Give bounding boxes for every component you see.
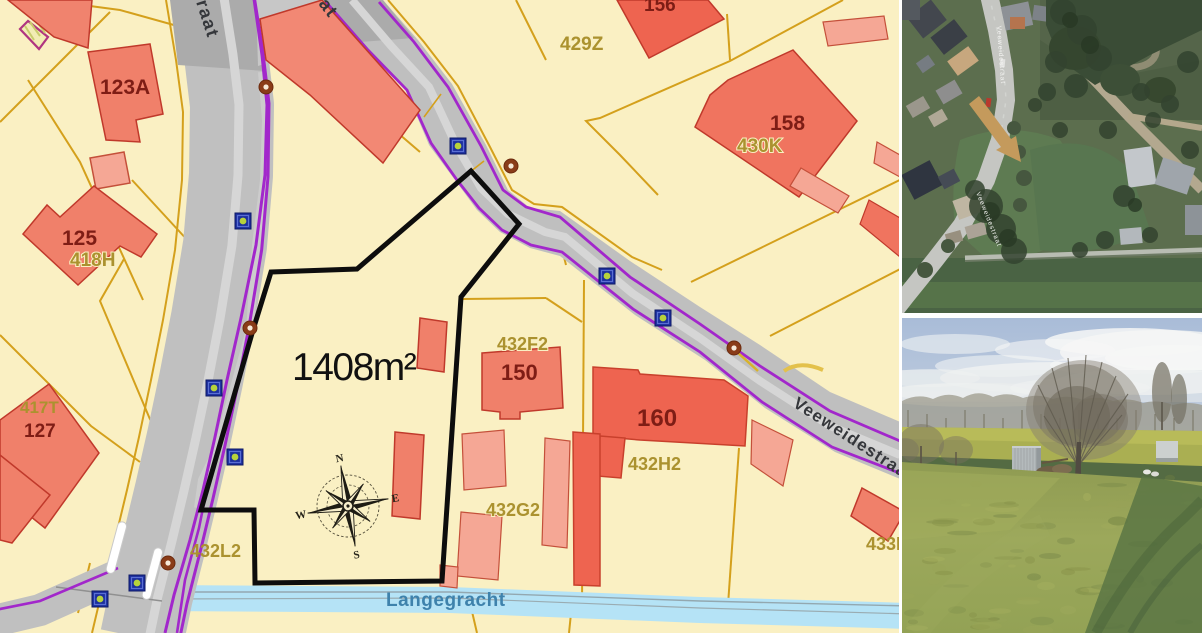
svg-text:1408m²: 1408m² [292,346,417,389]
svg-text:429Z: 429Z [560,34,604,55]
svg-text:158: 158 [770,112,805,135]
svg-text:123A: 123A [100,76,150,99]
svg-text:418H: 418H [70,250,115,271]
svg-text:432H2: 432H2 [628,454,681,474]
svg-text:432G2: 432G2 [486,500,540,520]
svg-text:417T: 417T [20,398,59,417]
svg-text:432F2: 432F2 [497,334,548,354]
svg-text:156: 156 [644,0,676,16]
svg-text:430K: 430K [737,136,783,157]
svg-text:127: 127 [24,421,56,442]
svg-text:150: 150 [501,360,538,385]
svg-text:160: 160 [637,405,677,432]
svg-text:432L2: 432L2 [190,541,241,561]
svg-text:125: 125 [62,227,97,250]
svg-text:Langegracht: Langegracht [386,590,506,611]
svg-text:W: W [294,508,307,522]
